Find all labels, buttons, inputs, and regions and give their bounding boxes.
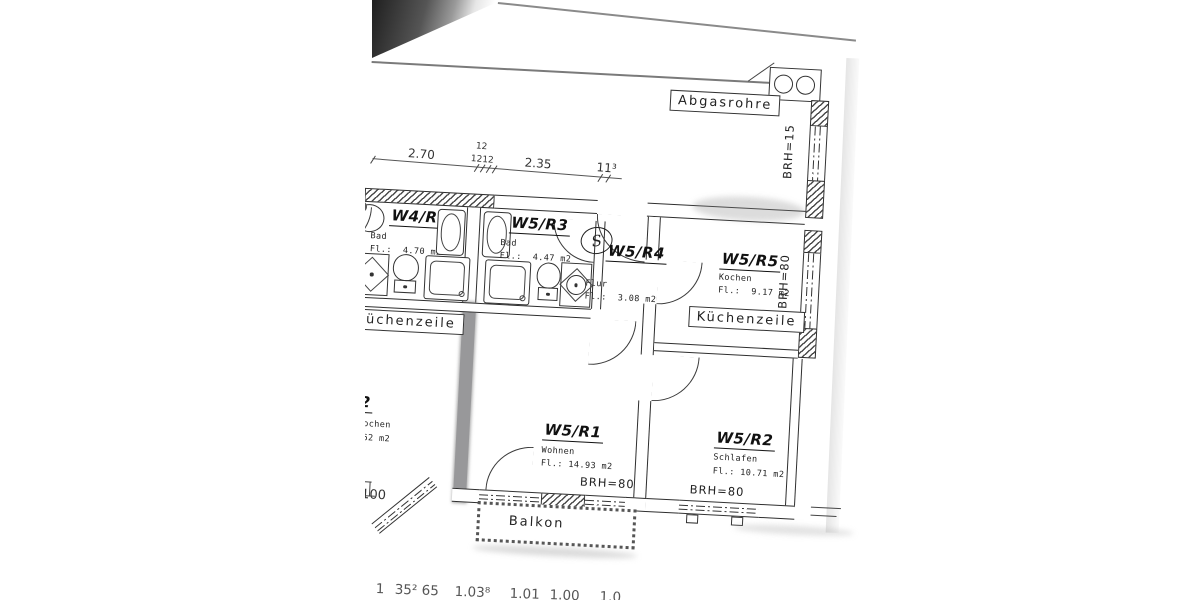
wall-right-hatched [810, 100, 829, 127]
building-top-wall-line [372, 61, 772, 84]
pipe-circle [774, 74, 794, 94]
bathtub-symbol [436, 209, 466, 256]
door-arc-wohnen [588, 319, 636, 367]
wall-line-right [811, 507, 841, 510]
dim-tick [605, 175, 611, 183]
dim-value: 12 [475, 141, 487, 152]
dim-tick [492, 165, 498, 173]
window-brh15 [807, 126, 828, 181]
wall-right-hatched [805, 180, 825, 219]
dim-value: 11³ [596, 160, 617, 176]
room-code-w5r4: W5/R4 [606, 242, 668, 265]
wall-schlafen-east [785, 358, 803, 507]
pipe-circle [796, 75, 816, 95]
kuechenzeile-label-left: Küchenzeile [365, 308, 464, 335]
washstand-symbol [365, 252, 390, 296]
dim-value: 1212 [470, 154, 494, 166]
wall-right-hatched [803, 230, 822, 254]
room-type-w5r4: Flur [585, 278, 608, 289]
dim-value: 1.03⁸ [454, 584, 490, 600]
kuechenzeile-label-right: Küchenzeile [688, 306, 805, 333]
floorplan-rotated-group: Abgasrohre 2.70 12 1212 2.35 11³ [365, 55, 891, 600]
wall-diagonal-neighbor [371, 477, 437, 534]
wall-top [494, 195, 598, 214]
door-arc-kochen [656, 260, 702, 306]
wall-schlafen-south [758, 504, 795, 520]
room-type-w5r5: Kochen [719, 272, 753, 284]
room-type-w5r3: Bad [500, 238, 517, 249]
shower-symbol [483, 259, 531, 305]
dim-value: 1 [375, 581, 384, 597]
window-label-brh80-side: BRH=80 [775, 245, 792, 310]
wall-top-hatched [365, 188, 495, 209]
room-type-w5r1: Wohnen [541, 445, 575, 457]
wall-schlafen-south [645, 498, 679, 514]
room-code-w5r2: W5/R2 [714, 428, 776, 451]
dimension-line-top: 2.70 12 1212 2.35 11³ [373, 158, 622, 179]
dim-value: 2.70 [408, 146, 436, 162]
dim-value: 2.35 [524, 155, 552, 171]
washbasin-symbol [365, 203, 385, 233]
dim-value: 35² [394, 582, 417, 599]
room-code-w5r5: W5/R5 [719, 249, 781, 272]
room-area-neighbor: .62 m2 [365, 433, 390, 445]
dim-value: 65 [421, 583, 439, 600]
abgasrohre-label: Abgasrohre [669, 90, 780, 117]
door-arc-balkon [485, 445, 533, 492]
floorplan-area: Abgasrohre 2.70 12 1212 2.35 11³ [365, 0, 910, 600]
window-label-brh80-schlafen: BRH=80 [689, 482, 744, 499]
toilet-symbol [389, 253, 421, 300]
room-type-w5r2: Schlafen [713, 452, 758, 464]
s-symbol-letter: S [590, 231, 603, 250]
room-code-w5r1: W5/R1 [542, 420, 604, 443]
wall-line-right [810, 515, 836, 518]
scanned-floorplan-page: Abgasrohre 2.70 12 1212 2.35 11³ [0, 0, 1200, 600]
shower-symbol [423, 255, 470, 301]
dim-value: 1.00 [549, 587, 580, 600]
door-arc-schlafen [651, 355, 699, 403]
window-label-brh80-wohnen: BRH=80 [580, 474, 635, 491]
room-type-neighbor: Kochen [365, 419, 391, 431]
room-type-w4r4: Bad [370, 231, 387, 242]
wall-wohnen-schlafen [632, 400, 651, 512]
dim-value: 1.01 [509, 586, 540, 600]
wall-pier [686, 514, 698, 524]
wall-wohnen-south [452, 488, 480, 503]
dim-tick [370, 156, 376, 164]
room-code-w5r3: W5/R3 [509, 213, 571, 236]
room-code-neighbor: 2 [365, 393, 373, 414]
dim-value: 1.0 [599, 589, 621, 600]
balkon-outline: Balkon [476, 501, 637, 549]
dim-tick [597, 174, 603, 182]
room-area-w5r1: Fl.: 14.93 m2 [541, 458, 613, 472]
scan-shade [734, 523, 854, 538]
room-area-w5r2: Fl.: 10.71 m2 [712, 466, 784, 480]
window-label-brh15: BRH=15 [780, 115, 797, 180]
balkon-label: Balkon [501, 511, 572, 534]
